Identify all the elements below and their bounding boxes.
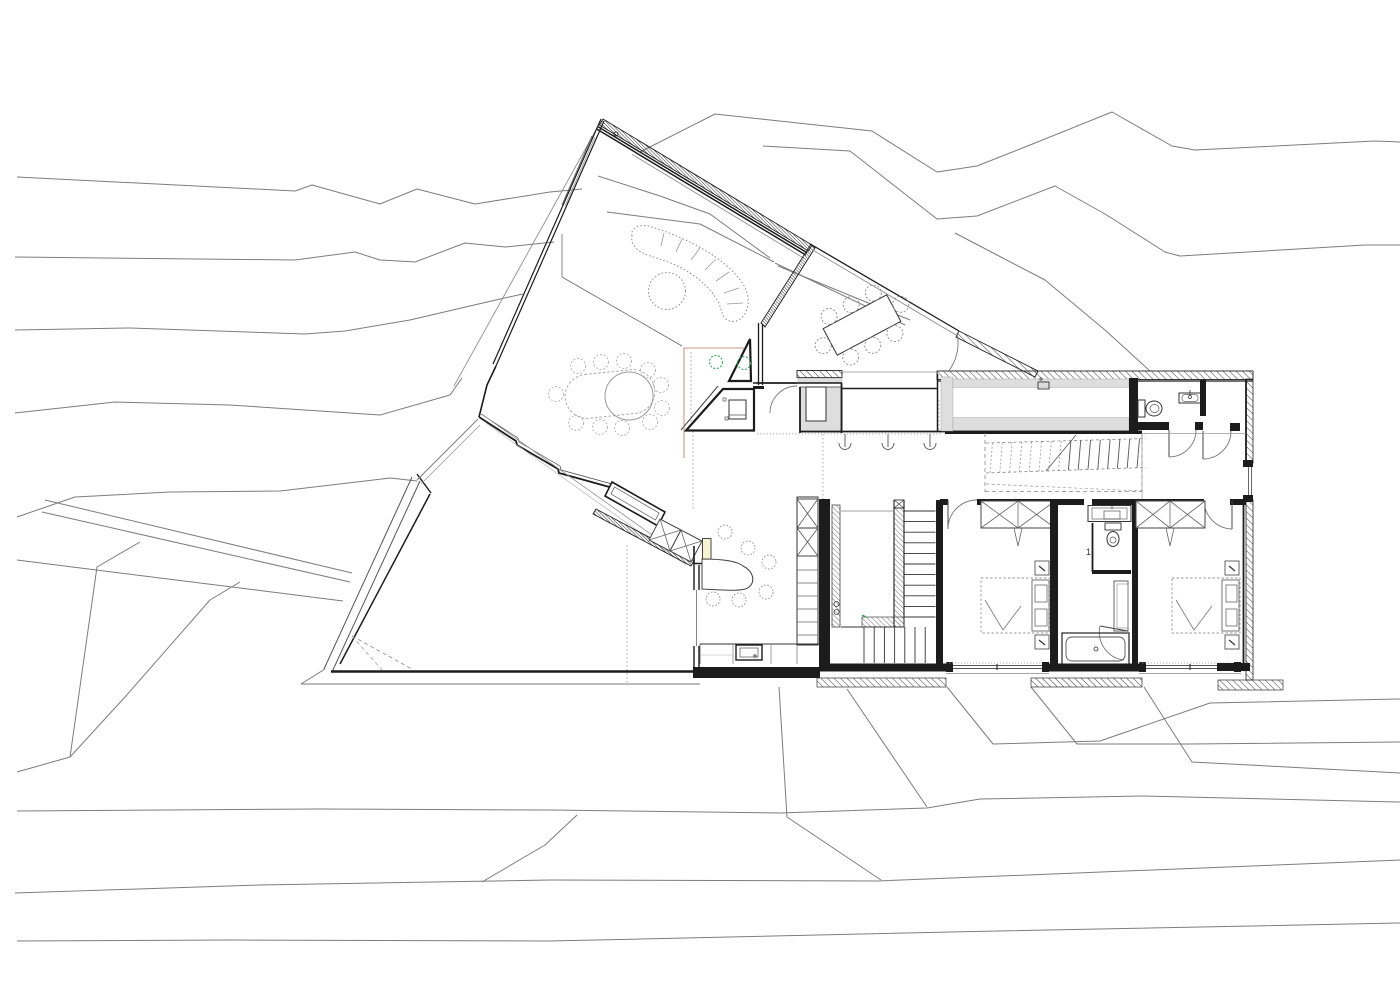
svg-text:1: 1	[1086, 547, 1091, 557]
